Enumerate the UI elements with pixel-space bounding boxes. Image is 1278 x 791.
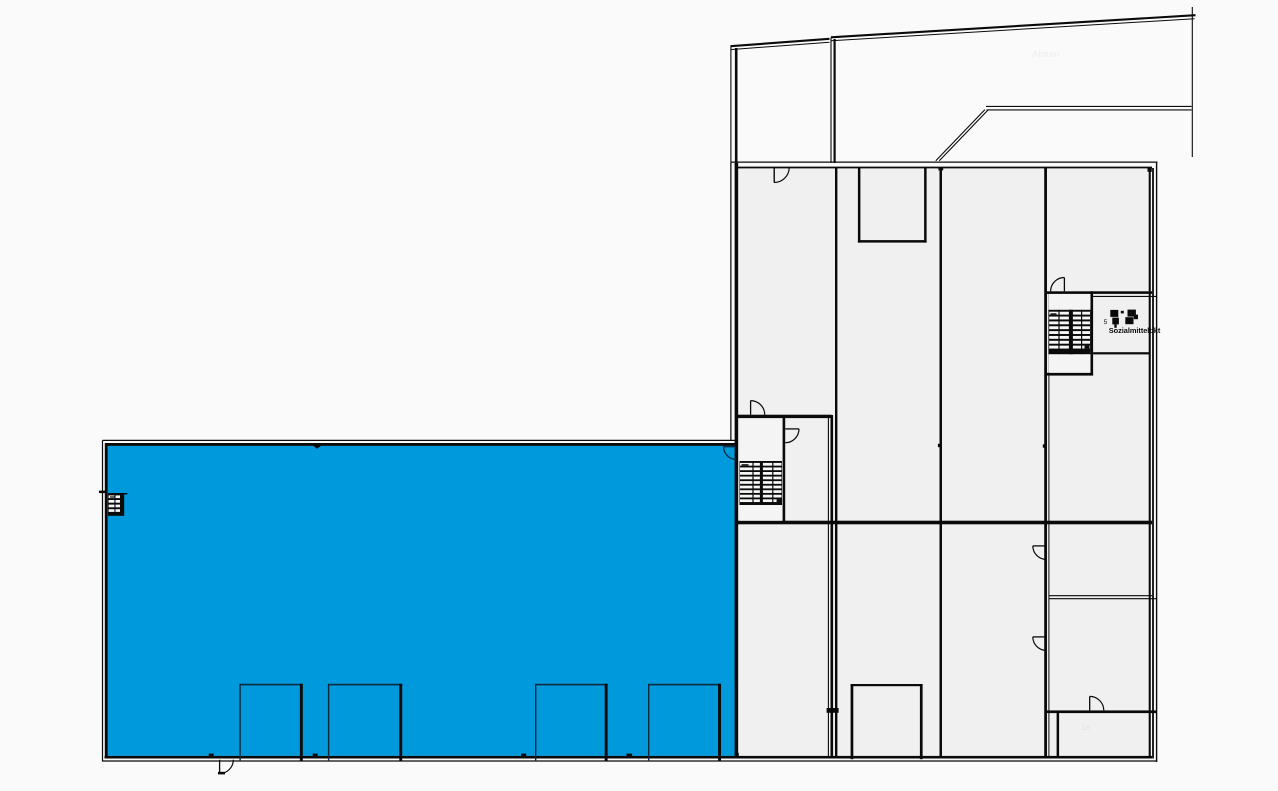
svg-text:5: 5 [1104,319,1108,326]
svg-text:Atrium: Atrium [1032,49,1060,60]
svg-text:1e: 1e [1081,723,1090,732]
svg-text:Sozialmittelbkt: Sozialmittelbkt [1109,326,1161,335]
